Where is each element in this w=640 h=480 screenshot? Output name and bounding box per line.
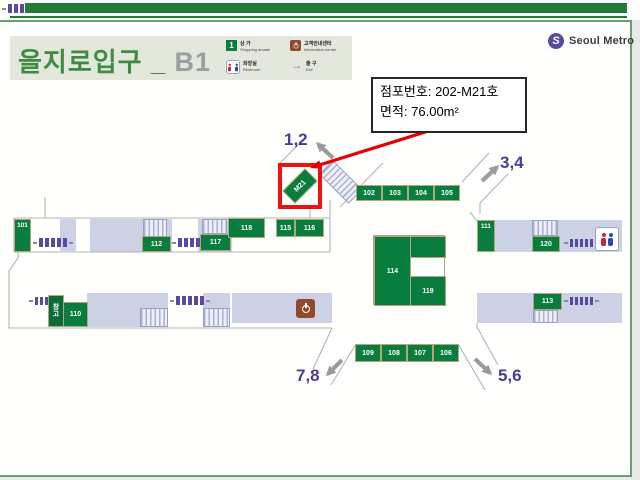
seoul-metro-logo-text: Seoul Metro: [569, 35, 634, 47]
page-title: 을지로입구 _ B1: [18, 42, 211, 79]
stairs: [203, 308, 230, 327]
top-green-bar: [25, 3, 627, 13]
store-103[interactable]: 103: [382, 185, 408, 201]
legend-label-kr: 출 구: [306, 60, 317, 67]
legend-label-kr: 화장실: [243, 60, 260, 67]
store-119[interactable]: 119: [410, 276, 446, 306]
store-108[interactable]: 108: [381, 344, 407, 362]
legend-item-shop: 1 상 가Shopping arcade: [226, 40, 270, 52]
seoul-metro-logo: S Seoul Metro: [548, 33, 634, 49]
corridor-block: [232, 293, 332, 323]
store-106[interactable]: 106: [433, 344, 459, 362]
stairs: [143, 219, 167, 237]
legend-label-en: Shopping arcade: [240, 47, 270, 52]
legend-label-en: Exit: [306, 67, 317, 72]
exit-label-3-4: 3,4: [500, 153, 524, 173]
seoul-metro-logo-icon: S: [548, 33, 564, 49]
top-green-line: [10, 16, 627, 18]
exit-arrow-icon: →: [290, 60, 303, 71]
fare-gates-icon: [170, 296, 210, 305]
legend-label-en: Information center: [304, 47, 336, 52]
restroom-icon: [226, 60, 240, 74]
legend-item-info: 고객안내센터Information center: [290, 40, 336, 52]
store-116[interactable]: 116: [295, 219, 324, 237]
stairs: [140, 308, 168, 327]
stairs: [533, 310, 558, 323]
shop-number-icon: 1: [226, 40, 237, 51]
store-unlabeled[interactable]: [410, 236, 446, 258]
restroom-icon: [595, 227, 619, 251]
exit-label-7-8: 7,8: [296, 366, 320, 386]
store-111[interactable]: 111: [477, 220, 495, 252]
store-107[interactable]: 107: [407, 344, 433, 362]
store-112[interactable]: 112: [142, 236, 171, 252]
info-icon: [290, 40, 301, 51]
exit-label-5-6: 5,6: [498, 366, 522, 386]
legend-label-kr: 고객안내센터: [304, 40, 336, 47]
store-114[interactable]: 114: [374, 236, 411, 306]
store-105[interactable]: 105: [434, 185, 460, 201]
callout-store-number: 점포번호: 202-M21호: [380, 82, 518, 102]
legend-label-kr: 상 가: [240, 40, 270, 47]
fare-gates-icon: [564, 297, 599, 305]
store-113[interactable]: 113: [533, 293, 562, 310]
legend-item-exit: → 출 구Exit: [290, 60, 317, 72]
title-separator: _: [151, 47, 166, 77]
store-102[interactable]: 102: [356, 185, 382, 201]
store-104[interactable]: 104: [408, 185, 434, 201]
legend: 1 상 가Shopping arcade 고객안내센터Information c…: [226, 38, 352, 80]
center-store-block: 114 119: [373, 235, 445, 305]
store-109[interactable]: 109: [355, 344, 381, 362]
info-center-icon: [296, 299, 315, 318]
store-110[interactable]: 110: [63, 302, 88, 327]
stairs: [532, 220, 558, 236]
legend-label-en: Restroom: [243, 67, 260, 72]
store-101[interactable]: 101: [14, 219, 31, 252]
store-info-callout: 점포번호: 202-M21호 면적: 76.00m²: [371, 77, 527, 133]
corridor-block: [87, 293, 142, 327]
callout-area: 면적: 76.00m²: [380, 102, 518, 122]
floor-level: B1: [175, 47, 212, 77]
store-120[interactable]: 120: [532, 236, 560, 252]
store-115[interactable]: 115: [276, 219, 295, 237]
fare-gates-icon: [564, 239, 599, 247]
warehouse-box[interactable]: 창고: [48, 295, 64, 327]
corridor-block: [140, 293, 168, 308]
fare-gates-icon: [33, 238, 73, 247]
store-118[interactable]: 118: [228, 218, 265, 238]
store-117[interactable]: 117: [200, 234, 231, 251]
exit-label-1-2: 1,2: [284, 130, 308, 150]
legend-item-restroom: 화장실Restroom: [226, 60, 260, 74]
station-name: 을지로입구: [18, 47, 143, 77]
stairs: [202, 219, 227, 234]
